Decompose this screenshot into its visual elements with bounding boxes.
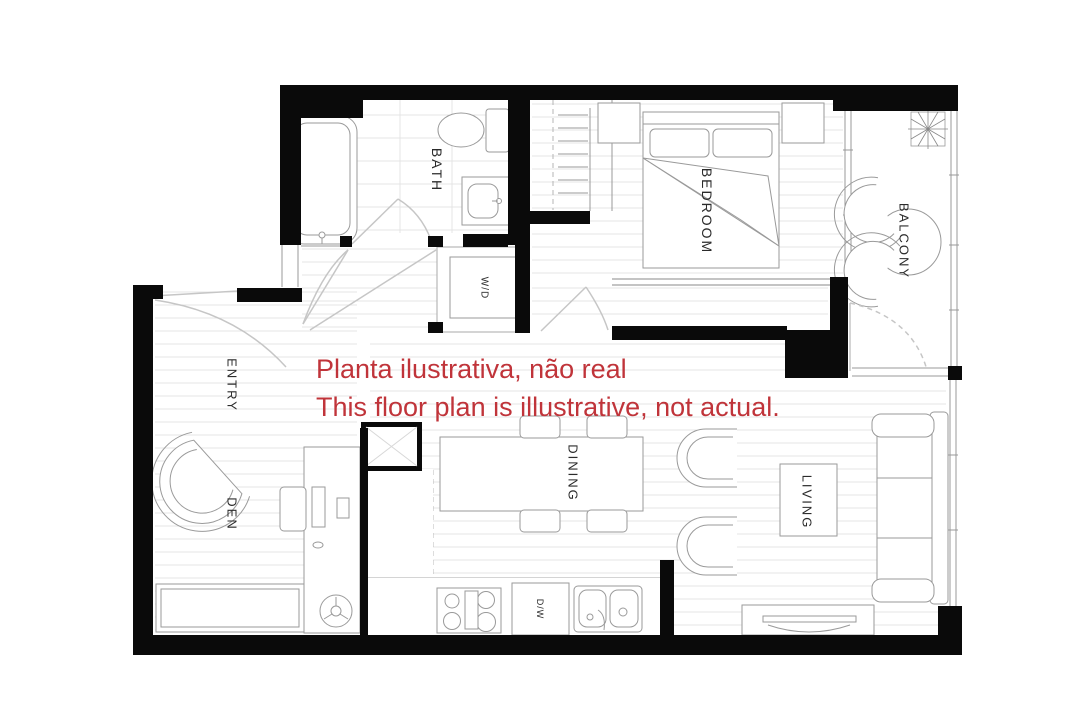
living-label: LIVING	[800, 475, 815, 530]
dining-chair	[520, 510, 560, 532]
bath-door	[352, 199, 431, 244]
floor-plan-image: BATH W/D BEDROOM BALCONY ENTRY DEN DININ…	[0, 0, 1080, 720]
desk-chair	[280, 487, 306, 531]
nightstand-right	[782, 103, 824, 143]
plant	[908, 109, 948, 149]
bath-label: BATH	[429, 148, 445, 192]
shaft-column	[364, 425, 420, 469]
living-armchair-2	[677, 517, 737, 575]
dining-chair	[587, 510, 627, 532]
bench	[156, 584, 304, 632]
dining-table	[440, 437, 643, 511]
stove	[437, 588, 501, 633]
dishwasher-label: D/W	[535, 599, 545, 620]
toilet	[438, 109, 509, 152]
den-label: DEN	[225, 497, 240, 530]
disclaimer-text: Planta ilustrativa, não real This floor …	[316, 350, 780, 426]
stool	[320, 595, 352, 627]
kitchen-counter-left	[368, 469, 433, 576]
bathroom-sink	[462, 177, 509, 225]
living-armchair-1	[677, 429, 737, 487]
disclaimer-line-en: This floor plan is illustrative, not act…	[316, 388, 780, 426]
bedroom-label: BEDROOM	[699, 168, 715, 254]
dining-label: DINING	[566, 444, 581, 502]
balcony-label: BALCONY	[897, 203, 912, 279]
sofa	[872, 412, 948, 604]
balcony-door	[850, 303, 927, 371]
entry-label: ENTRY	[225, 358, 240, 412]
disclaimer-line-pt: Planta ilustrativa, não real	[316, 350, 780, 388]
tv-console	[742, 605, 874, 635]
nightstand-left	[598, 103, 640, 143]
bedroom-door	[541, 287, 608, 331]
kitchen-sink	[574, 586, 642, 632]
washer-dryer-label: W/D	[479, 277, 490, 299]
